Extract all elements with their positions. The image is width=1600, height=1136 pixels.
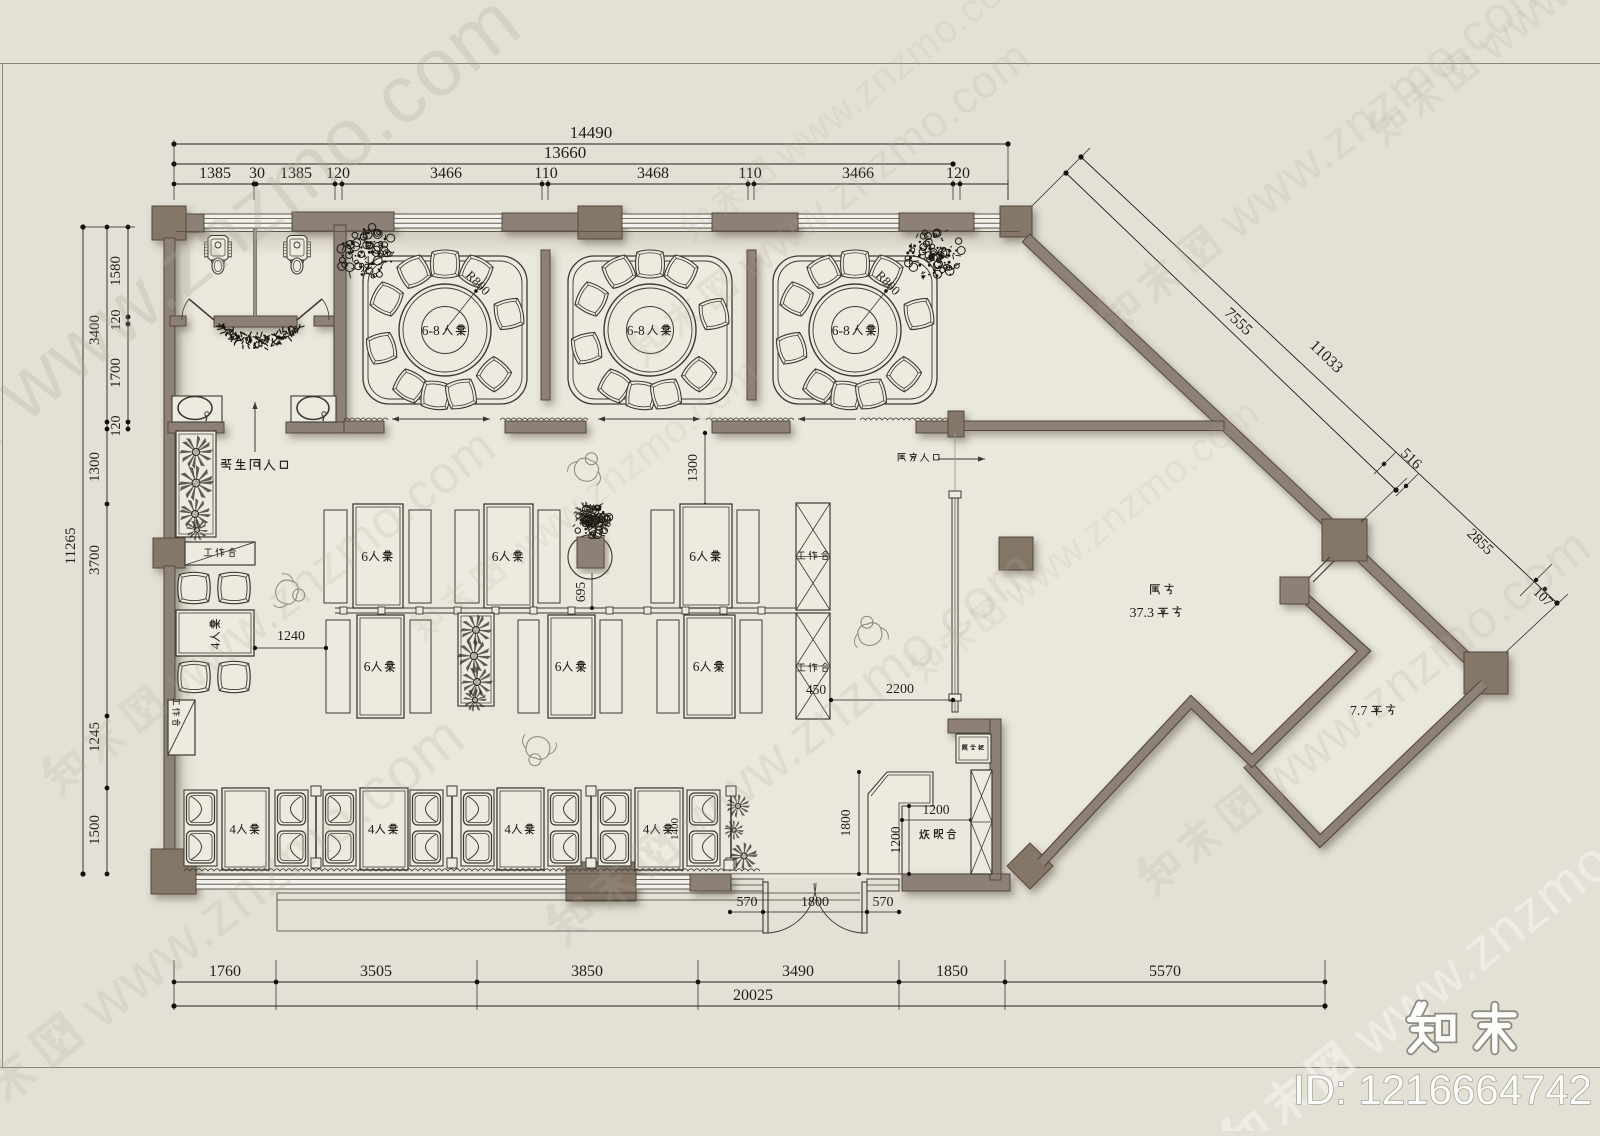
svg-text:37.3: 37.3 (1130, 606, 1155, 621)
svg-text:3505: 3505 (360, 963, 392, 980)
svg-text:3700: 3700 (87, 545, 103, 575)
svg-text:6-8: 6-8 (422, 323, 440, 338)
svg-text:20025: 20025 (733, 987, 773, 1004)
svg-text:120: 120 (109, 416, 124, 437)
svg-text:110: 110 (534, 165, 557, 182)
svg-text:6: 6 (689, 549, 696, 564)
svg-text:695: 695 (573, 582, 588, 603)
svg-text:6: 6 (364, 659, 371, 674)
svg-text:13660: 13660 (544, 143, 587, 162)
svg-text:1760: 1760 (209, 963, 241, 980)
svg-text:1800: 1800 (801, 895, 829, 910)
svg-text:120: 120 (946, 165, 970, 182)
svg-text:5570: 5570 (1149, 963, 1181, 980)
svg-text:570: 570 (737, 895, 758, 910)
svg-text:3468: 3468 (637, 165, 669, 182)
svg-text:3490: 3490 (782, 963, 814, 980)
svg-text:1300: 1300 (686, 454, 701, 482)
svg-text:570: 570 (873, 895, 894, 910)
svg-text:3466: 3466 (430, 165, 462, 182)
svg-text:1300: 1300 (87, 452, 103, 482)
svg-text:1500: 1500 (87, 815, 103, 845)
svg-text:6: 6 (555, 659, 562, 674)
svg-text:11265: 11265 (63, 528, 79, 565)
svg-text:3850: 3850 (571, 963, 603, 980)
svg-text:4: 4 (229, 822, 236, 837)
svg-text:14490: 14490 (570, 123, 613, 142)
svg-text:6-8: 6-8 (832, 323, 850, 338)
svg-text:4: 4 (504, 822, 511, 837)
svg-text:ID: 1216664742: ID: 1216664742 (1293, 1066, 1592, 1113)
svg-text:1850: 1850 (936, 963, 968, 980)
svg-text:6: 6 (693, 659, 700, 674)
svg-text:1200: 1200 (923, 802, 950, 817)
svg-text:1800: 1800 (838, 809, 853, 836)
svg-text:1200: 1200 (888, 826, 903, 853)
